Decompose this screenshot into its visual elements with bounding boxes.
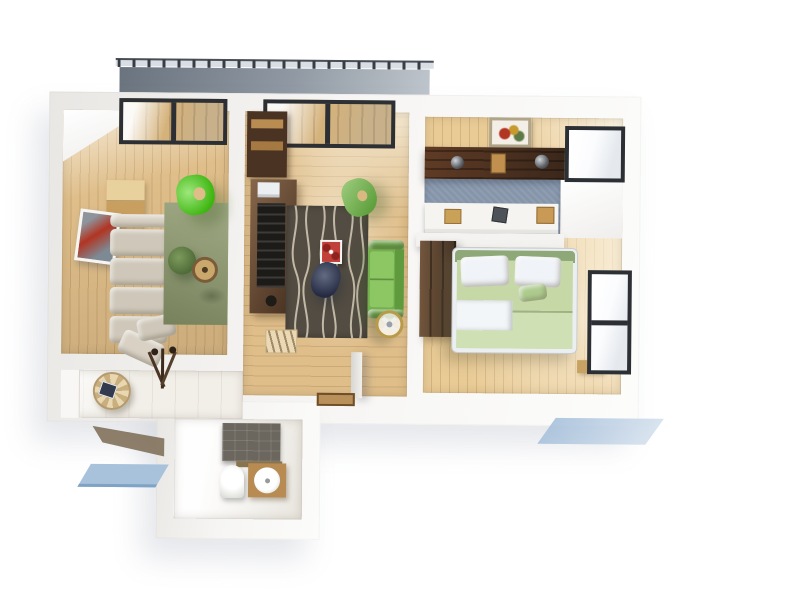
washing-machine-top — [254, 467, 280, 493]
bed-pillow — [460, 255, 509, 287]
fan-hub — [386, 321, 392, 327]
hallway-cabinet — [61, 370, 80, 418]
table-center-dot — [202, 267, 208, 273]
ground-shadow-brown — [92, 426, 164, 457]
doormat — [317, 393, 355, 406]
coat-rack-knob — [169, 347, 176, 354]
chair-seat-hole — [193, 186, 207, 200]
window-mullion — [591, 320, 627, 325]
ground-shadow-blue-left — [77, 464, 168, 488]
nook-right-wall-face — [560, 180, 623, 239]
bed-white-throw — [456, 300, 512, 330]
beam-picture — [491, 153, 506, 173]
floorplan-scene — [0, 0, 800, 600]
red-poinsettia-cloth — [322, 242, 340, 262]
tv-screen — [257, 203, 286, 287]
side-table-white — [320, 240, 342, 264]
entry-door-leaf — [351, 352, 362, 398]
bedroom-side-window — [587, 270, 632, 374]
washer-counter — [248, 463, 286, 497]
magazine-bench — [265, 329, 297, 353]
toilet — [220, 465, 244, 498]
coat-rack-knob — [151, 348, 158, 355]
round-striped-table — [93, 372, 131, 410]
double-bed — [451, 247, 578, 354]
sofa-armrest — [110, 214, 172, 228]
window-mullion — [325, 104, 330, 144]
desk-books — [444, 209, 461, 224]
coffee-table-round — [192, 257, 218, 283]
apartment-render — [0, 0, 800, 600]
window-mullion — [171, 103, 176, 141]
spotlight-icon — [451, 156, 464, 169]
sofa-arm-top — [368, 240, 404, 249]
desk-photo-frame — [536, 207, 554, 224]
coat-rack — [137, 346, 181, 394]
sofa-seat — [370, 251, 394, 307]
shower-tile-wall — [222, 423, 280, 462]
living-balcony-window — [119, 98, 227, 145]
spotlight-icon — [535, 155, 549, 169]
ground-shadow-blue-right — [537, 418, 663, 445]
sofa-cushion — [110, 287, 168, 315]
sofa-back — [395, 249, 405, 309]
printer — [258, 182, 280, 197]
table-shadow — [198, 287, 226, 305]
sofa-cushion — [110, 258, 168, 286]
tablet — [98, 381, 118, 399]
chair-seat-hole — [356, 189, 369, 202]
cabinet-top-box — [107, 180, 145, 201]
sideboard-knob — [266, 295, 277, 306]
sofa-cushion — [110, 229, 168, 257]
shelf-beam-dark-wood — [425, 147, 567, 180]
top-wall-picture-frame — [489, 117, 531, 147]
bedroom-corner-window — [565, 126, 625, 183]
study-desk — [424, 203, 558, 234]
pedestal-fan — [375, 310, 403, 338]
desk-dark-frame — [491, 206, 508, 223]
washer-knob — [265, 478, 270, 483]
lounge-dark-cabinet — [247, 111, 288, 177]
cabinet-shelf-wood — [251, 119, 283, 128]
window-glass — [569, 130, 621, 178]
green-sofa — [367, 240, 404, 318]
cabinet-shelf-wood — [251, 141, 283, 150]
